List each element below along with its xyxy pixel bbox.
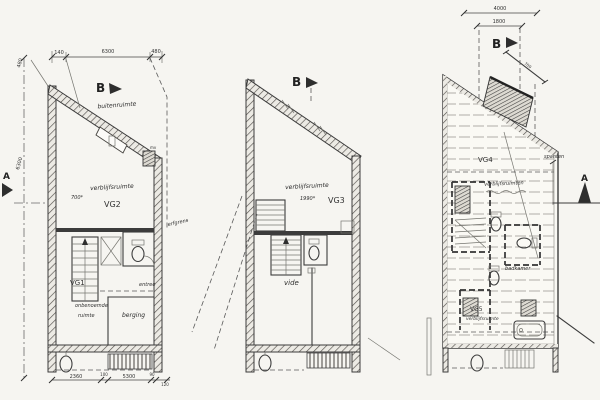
toilet-icon <box>309 246 319 260</box>
drawing-sheet: 140 6300 480 480 6300 A <box>0 0 600 400</box>
stairs-upper <box>256 200 285 231</box>
berging-label: berging <box>122 312 145 319</box>
verblijfsruimte-label: verblijfsruimte <box>466 316 499 322</box>
entree-label: entree <box>139 282 155 288</box>
section-letter-a: A <box>581 174 588 184</box>
right-plan-top-dimensions: 4000 1800 <box>461 6 540 29</box>
section-marker-a: A <box>553 174 600 203</box>
dim-label: 140 <box>54 50 64 56</box>
stairs-arrow-icon <box>82 238 88 245</box>
section-arrow-icon <box>306 77 318 88</box>
dim-label: 480 <box>16 58 24 69</box>
toilet-room <box>123 232 154 266</box>
dim-label: 700 <box>523 61 532 70</box>
spanten-label: spanten <box>544 154 564 160</box>
section-marker-b: B <box>96 81 122 95</box>
area-label: 1990* <box>300 196 316 202</box>
dim-label: 100 <box>100 372 108 377</box>
section-marker-a: A <box>2 172 50 203</box>
left-plan-left-dimension: 480 6300 <box>15 55 48 381</box>
toilet-room <box>304 235 327 265</box>
buitenruimte-label: buitenruimte <box>97 101 137 111</box>
ruimte-label: ruimte <box>78 313 95 319</box>
middle-plan-walls <box>246 79 361 352</box>
middle-plan: B verblijfsruimte 1990* VG3 <box>167 75 400 372</box>
erfgrens-label: erfgrens <box>167 218 189 228</box>
closet-hatched <box>521 300 536 316</box>
vg4-label: VG4 <box>478 156 493 164</box>
floor-plan-drawing: 140 6300 480 480 6300 A <box>0 0 600 400</box>
vide-label: vide <box>284 279 299 287</box>
balcony <box>48 352 162 372</box>
vg1-label: VG1 <box>70 279 85 287</box>
section-marker-b: B <box>292 75 318 102</box>
vg2-label: VG2 <box>104 200 121 209</box>
fixture-icon <box>471 355 483 371</box>
section-arrow-icon <box>506 37 518 48</box>
onbenoemde-label: onbenoemde <box>75 303 108 309</box>
closet-hatched <box>455 186 470 213</box>
erfgrens-lines: erfgrens <box>167 196 257 350</box>
section-letter-a: A <box>3 172 10 182</box>
dim-label: 90 <box>149 372 155 377</box>
dim-label: 1800 <box>493 19 506 25</box>
berging-room <box>108 297 154 345</box>
dim-label: 480 <box>151 49 161 55</box>
dim-label: 120 <box>161 382 169 387</box>
dim-label: 5300 <box>123 374 136 380</box>
fixture-icon <box>259 355 271 371</box>
right-plan-walls <box>427 75 558 375</box>
interior-wall <box>254 231 352 235</box>
left-plan: 140 6300 480 480 6300 A <box>2 49 170 387</box>
mv-label: mv <box>150 145 157 150</box>
section-letter-b: B <box>96 81 105 95</box>
vg3-label: VG3 <box>328 196 345 205</box>
deck-stairs <box>505 350 534 368</box>
dim-label: 6300 <box>15 157 24 171</box>
stairs-arrow-icon <box>283 237 289 244</box>
toilet-icon <box>132 247 144 262</box>
door-arc <box>144 256 154 266</box>
stairs <box>72 237 98 301</box>
interior-wall <box>56 228 154 232</box>
section-arrow-icon <box>109 83 122 94</box>
balcony <box>246 338 400 372</box>
railing <box>307 353 350 368</box>
dim-label: 2360 <box>70 374 83 380</box>
badkamer-label: badkamer <box>505 266 531 272</box>
area-label: 700* <box>71 195 84 201</box>
closet <box>101 237 121 265</box>
vent-shaft <box>143 151 155 166</box>
stairs-lower <box>271 235 301 275</box>
verblijfsruimte-label: verblijfsruimte <box>285 182 329 191</box>
verblijfsruimte-label: verblijfsruimte <box>90 183 134 192</box>
right-plan: 4000 1800 B 700 <box>427 6 600 375</box>
section-letter-b: B <box>292 75 301 89</box>
section-letter-b: B <box>492 37 501 51</box>
vg5-label: VG5 <box>470 306 483 313</box>
railing <box>108 354 152 369</box>
section-arrow-icon <box>578 182 591 203</box>
dim-label: 4000 <box>494 6 507 12</box>
dim-label: 6300 <box>102 49 115 55</box>
left-plan-bottom-dimension: 2360 100 5300 90 120 <box>49 372 170 387</box>
section-arrow-icon <box>2 183 13 197</box>
